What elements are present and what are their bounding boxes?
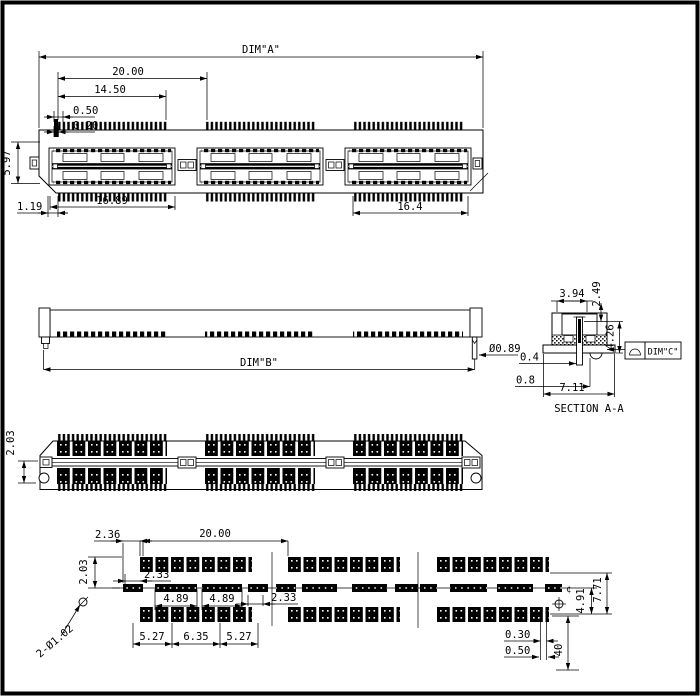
dim-14-50: 14.50 [94, 84, 126, 96]
dim-1-19: 1.19 [17, 201, 42, 213]
dim-4-89-b: 4.89 [209, 593, 234, 605]
dim-2-33-right: 2.33 [271, 592, 296, 604]
dim-0-20: 0.20 [73, 120, 98, 132]
dim-0-50: 0.50 [73, 105, 98, 117]
dim-6-35: 6.35 [183, 631, 208, 643]
left-mount-peg [42, 337, 50, 344]
dim-c-callout: DIM"C" [625, 342, 681, 359]
dim-20-00: 20.00 [112, 66, 144, 78]
engineering-drawing: DIM"A" 20.00 14.50 0.50 0.20 5.97 [0, 0, 700, 700]
dim-7-11: 7.11 [559, 382, 584, 394]
dim-peg-dia: Ø0.89 [489, 343, 521, 355]
dim-5-27-a: 5.27 [139, 631, 164, 643]
first-pin-mark [54, 119, 58, 137]
dim-2-03-rear: 2.03 [5, 430, 17, 455]
dim-4-26: 4.26 [605, 324, 617, 349]
dim-0-30: 0.30 [505, 629, 530, 641]
right-end-bracket [473, 158, 482, 169]
dim-20-00-footprint: 20.00 [199, 528, 231, 540]
right-mount-peg [472, 337, 477, 359]
left-mount-hole [39, 473, 49, 483]
dim-16-89: 16.89 [96, 195, 128, 207]
dim-0-4: 0.4 [520, 352, 539, 364]
dim-5-97: 5.97 [1, 150, 13, 175]
drawing-page: DIM"A" 20.00 14.50 0.50 0.20 5.97 [0, 0, 700, 700]
dim-2-36: 2.36 [95, 529, 120, 541]
dim-4-89-a: 4.89 [163, 593, 188, 605]
dim-b-label: DIM"B" [240, 357, 278, 369]
section-title: SECTION A-A [554, 403, 624, 415]
dim-2-33-left: 2.33 [144, 569, 169, 581]
dim-0-8: 0.8 [516, 375, 535, 387]
dim-a-label: DIM"A" [242, 44, 280, 56]
dim-0-50: 0.50 [505, 645, 530, 657]
right-mount-hole [471, 473, 481, 483]
dim-3-94: 3.94 [559, 288, 584, 300]
dim-5-27-b: 5.27 [226, 631, 251, 643]
dim-16-4: 16.4 [397, 201, 422, 213]
dim-c-label: DIM"C" [648, 348, 679, 358]
dim-2-49: 2.49 [591, 281, 603, 306]
centerline-mark: ¢ [566, 585, 571, 595]
dim-2-03-footprint: 2.03 [78, 559, 90, 584]
dim-40: 40 [553, 644, 565, 657]
rear-view: 2.03 [5, 430, 482, 491]
dim-4-91: 4.91 [575, 588, 587, 613]
left-end-tab [30, 157, 39, 169]
dim-7-71: 7.71 [592, 577, 604, 602]
